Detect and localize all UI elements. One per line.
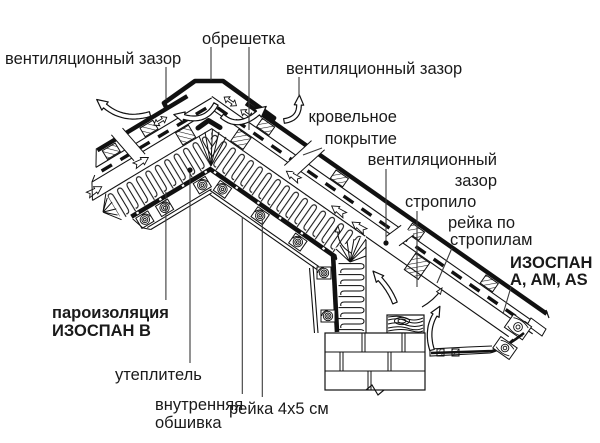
svg-text:рейка по: рейка по xyxy=(448,214,515,232)
svg-text:покрытие: покрытие xyxy=(325,130,397,148)
svg-text:вентиляционный зазор: вентиляционный зазор xyxy=(5,50,181,68)
svg-text:вентиляционный зазор: вентиляционный зазор xyxy=(286,60,462,78)
svg-text:пароизоляция: пароизоляция xyxy=(52,304,169,322)
svg-text:обшивка: обшивка xyxy=(155,414,222,432)
svg-text:утеплитель: утеплитель xyxy=(115,366,202,384)
svg-text:стропило: стропило xyxy=(405,193,476,211)
svg-text:стропилам: стропилам xyxy=(450,231,532,249)
svg-text:зазор: зазор xyxy=(455,172,497,190)
svg-text:кровельное: кровельное xyxy=(309,108,397,126)
svg-text:A, AM, AS: A, AM, AS xyxy=(510,271,588,289)
svg-text:вентиляционный: вентиляционный xyxy=(368,151,497,169)
svg-text:обрешетка: обрешетка xyxy=(202,30,286,48)
svg-text:рейка 4х5 см: рейка 4х5 см xyxy=(229,400,329,418)
svg-text:ИЗОСПАН: ИЗОСПАН xyxy=(510,254,592,272)
svg-text:ИЗОСПАН B: ИЗОСПАН B xyxy=(52,322,151,340)
